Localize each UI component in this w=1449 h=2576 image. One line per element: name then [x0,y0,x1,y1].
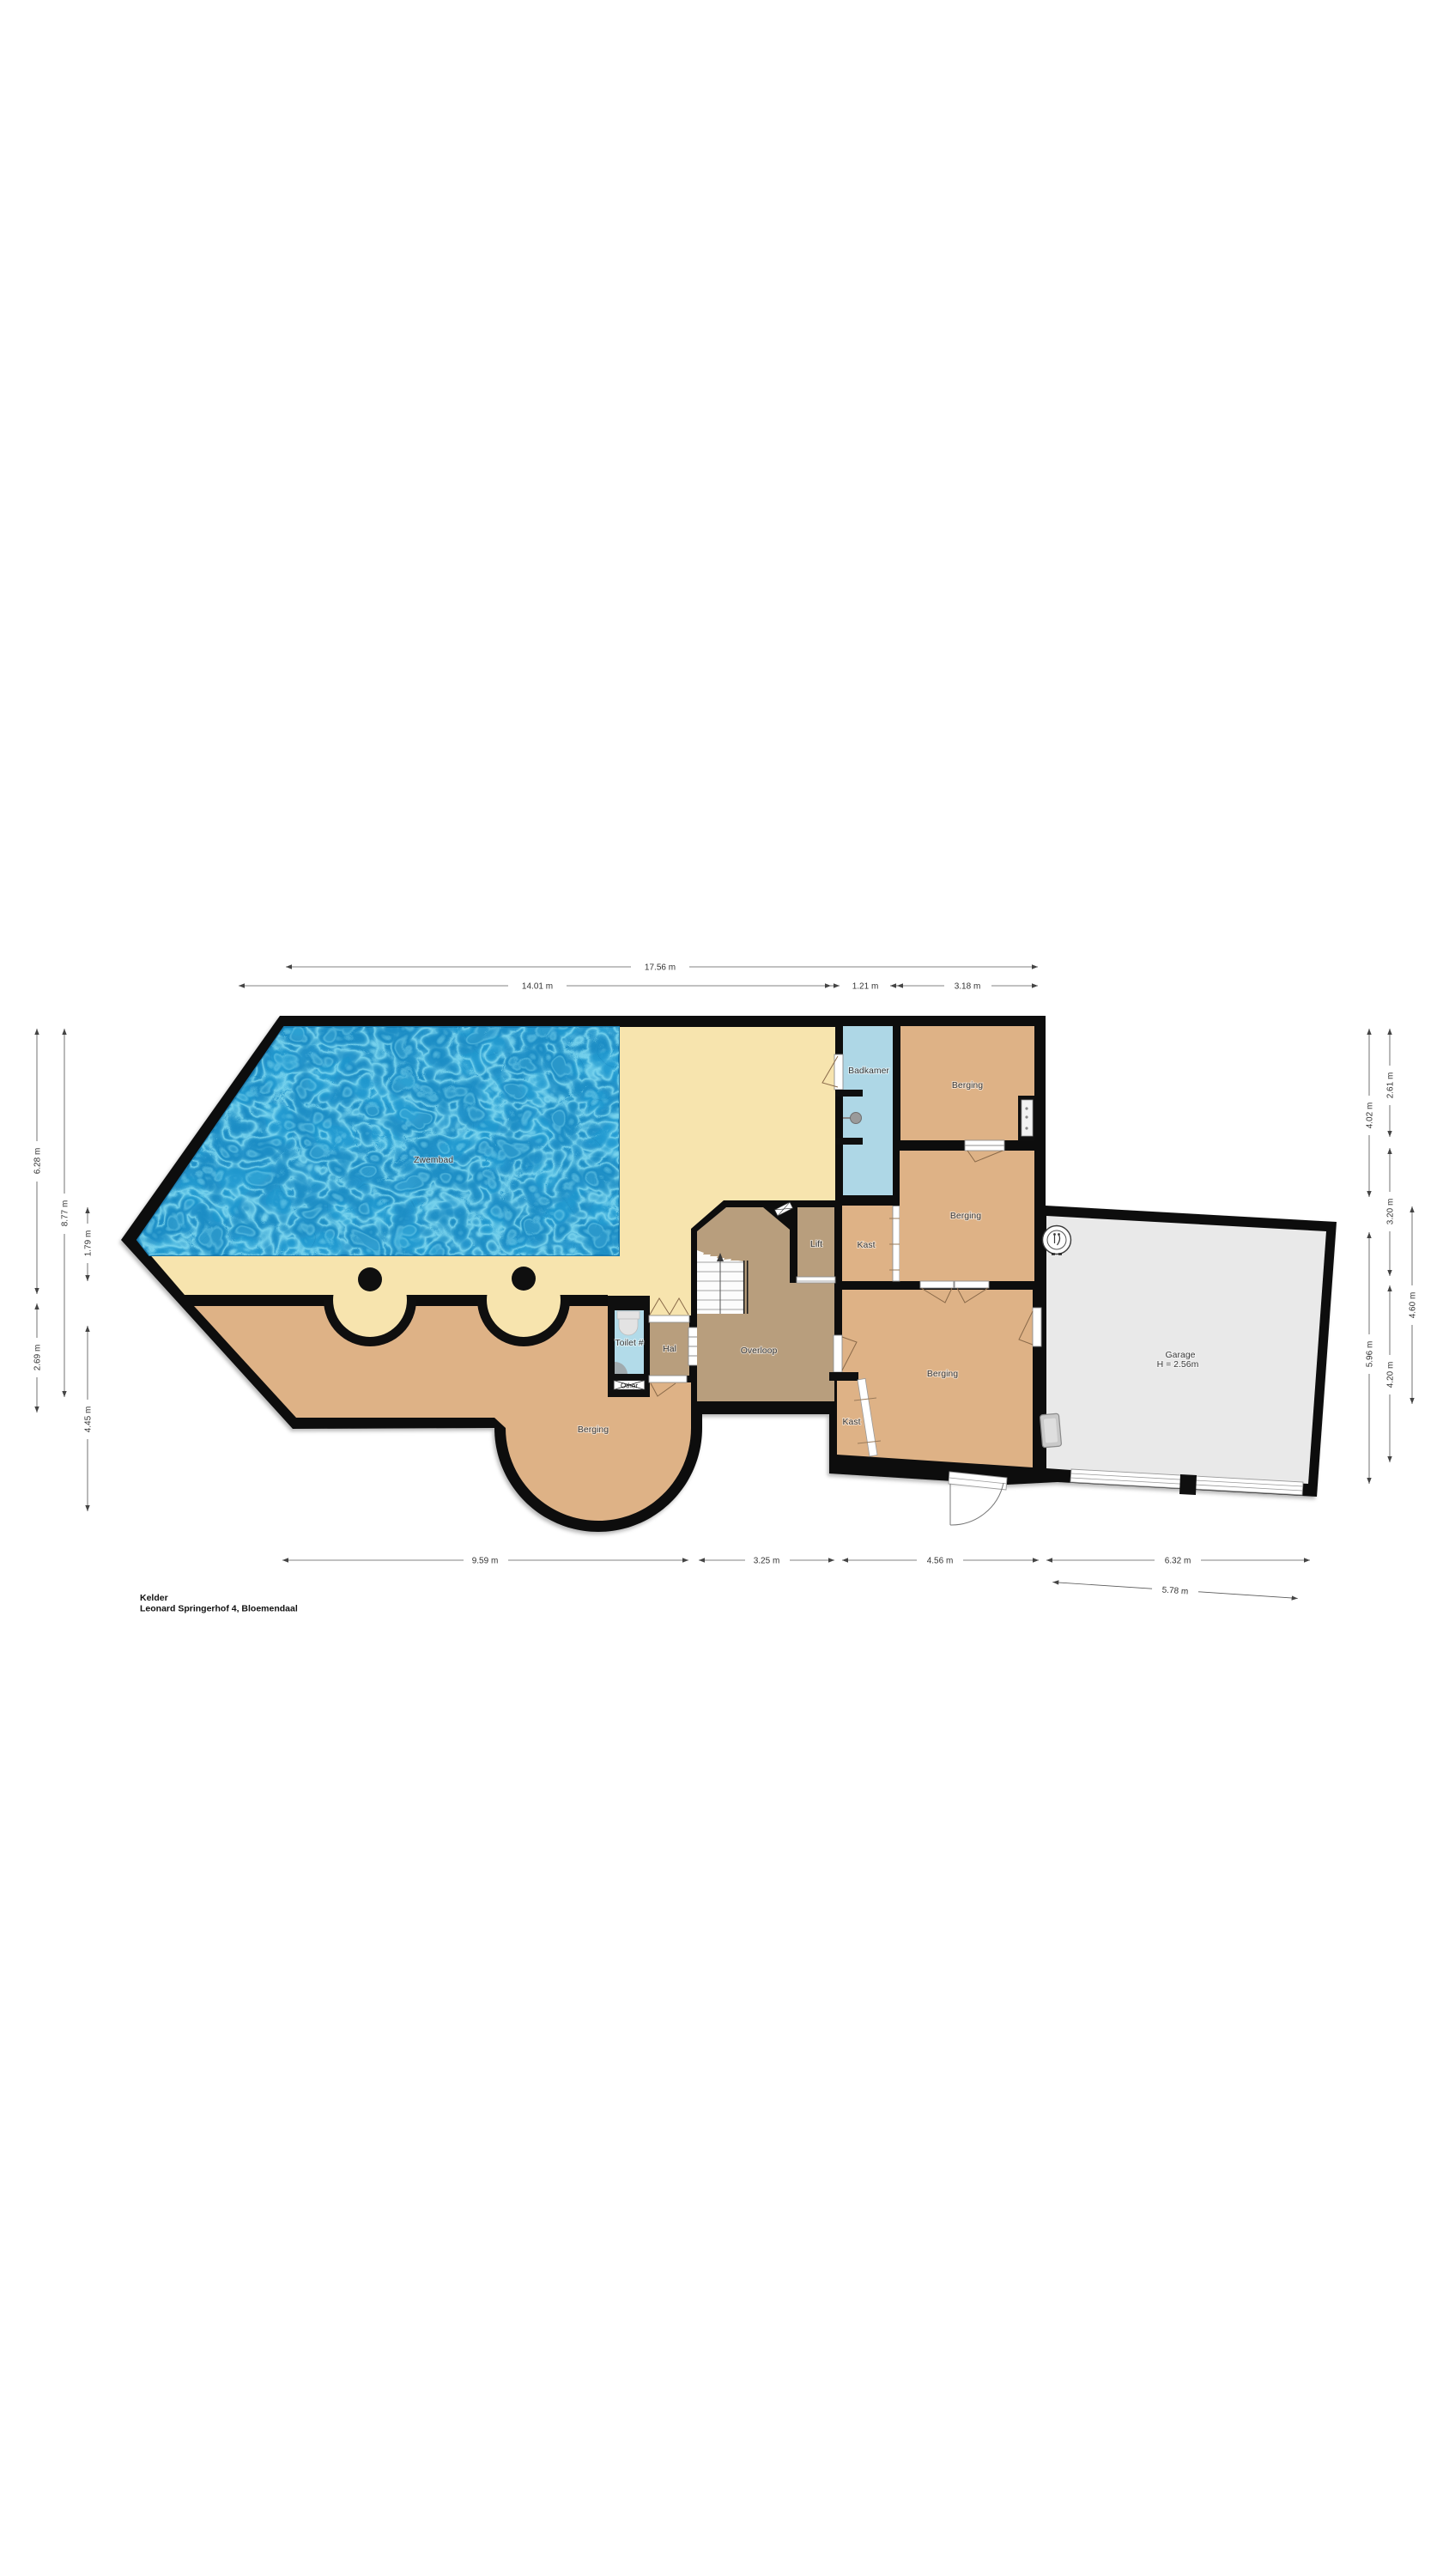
svg-text:Kast: Kast [857,1240,875,1250]
svg-text:Berging: Berging [950,1211,981,1221]
svg-text:4.60 m: 4.60 m [1409,1292,1418,1319]
svg-text:6.32 m: 6.32 m [1165,1557,1191,1566]
svg-text:Berging: Berging [927,1369,958,1379]
svg-text:4.02 m: 4.02 m [1366,1103,1375,1129]
svg-text:1.21 m: 1.21 m [852,982,879,992]
svg-text:9.59 m: 9.59 m [472,1557,499,1566]
svg-text:5.96 m: 5.96 m [1366,1341,1375,1368]
svg-text:8.77 m: 8.77 m [61,1200,70,1227]
svg-text:17.56 m: 17.56 m [645,963,676,973]
svg-text:4.56 m: 4.56 m [927,1557,954,1566]
svg-text:Zwembad: Zwembad [414,1155,453,1165]
svg-text:Kast: Kast [842,1417,860,1427]
svg-text:Toilet #: Toilet # [615,1338,643,1348]
svg-text:Leonard Springerhof 4, Bloemen: Leonard Springerhof 4, Bloemendaal [140,1604,298,1614]
svg-text:Berging: Berging [952,1080,983,1091]
svg-text:4.45 m: 4.45 m [84,1406,94,1433]
svg-text:3.20 m: 3.20 m [1386,1199,1396,1225]
svg-text:14.01 m: 14.01 m [522,982,553,992]
svg-text:3.18 m: 3.18 m [955,982,981,992]
svg-text:Berging: Berging [578,1425,609,1435]
svg-text:3.25 m: 3.25 m [754,1557,780,1566]
svg-text:Lift: Lift [810,1239,822,1249]
svg-text:Hal: Hal [663,1344,676,1354]
svg-text:5.78 m: 5.78 m [1161,1585,1188,1596]
svg-text:4.20 m: 4.20 m [1386,1362,1396,1388]
svg-text:Kelder: Kelder [140,1593,168,1603]
svg-text:2.69 m: 2.69 m [33,1345,43,1371]
svg-text:2.61 m: 2.61 m [1386,1072,1396,1099]
svg-text:6.28 m: 6.28 m [33,1148,43,1175]
svg-text:Other: Other [621,1382,638,1390]
svg-text:1.79 m: 1.79 m [84,1230,94,1257]
svg-text:Badkamer: Badkamer [848,1066,889,1076]
svg-text:H = 2.56m: H = 2.56m [1157,1359,1199,1370]
svg-text:Overloop: Overloop [741,1346,778,1356]
